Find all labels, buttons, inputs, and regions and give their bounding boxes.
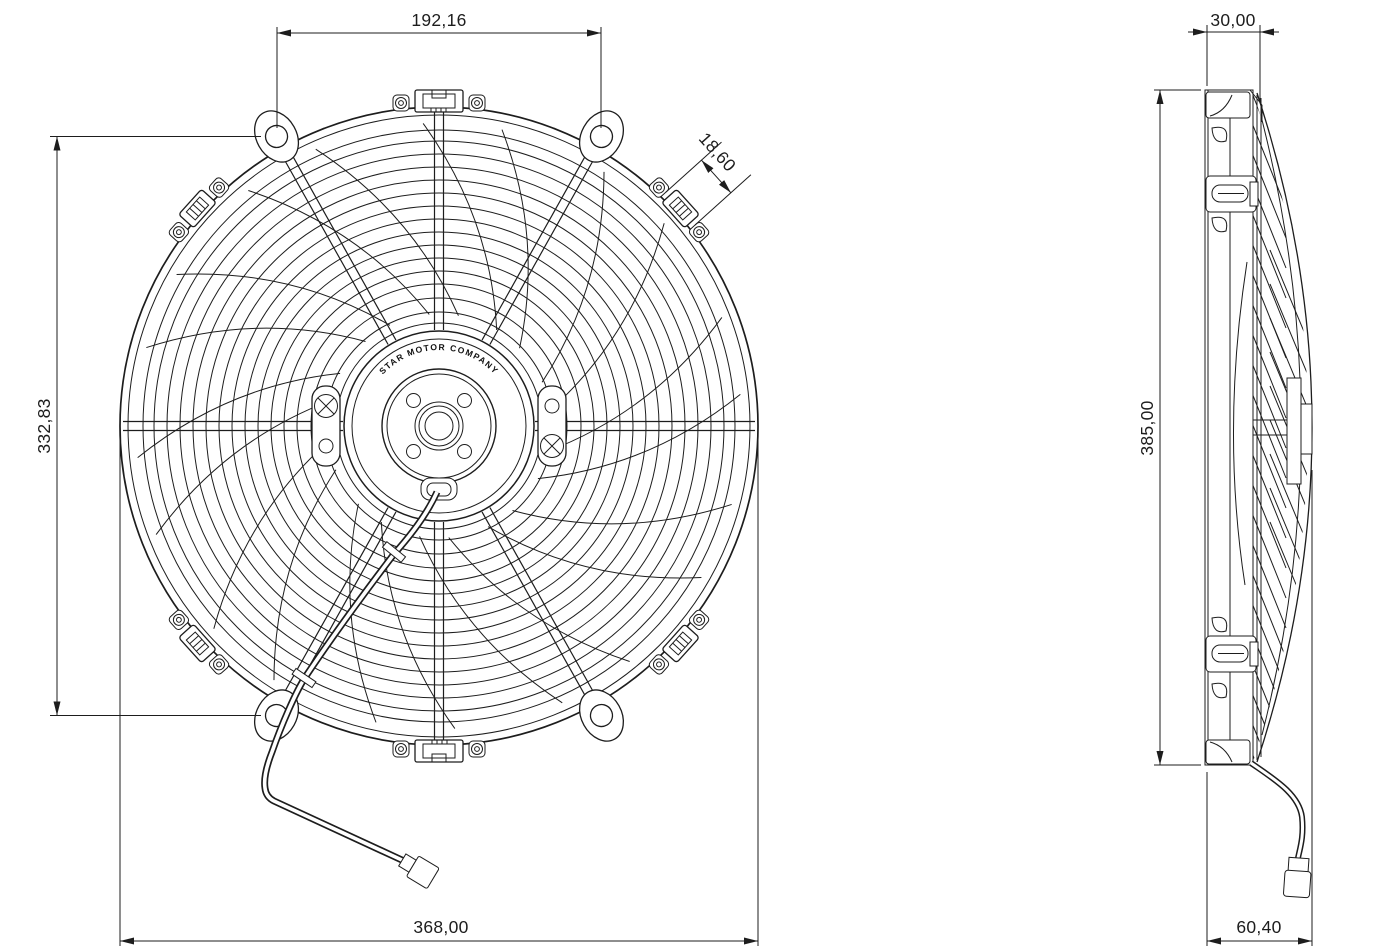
fan-technical-drawing: STAR MOTOR COMPANY 192,16 [0,0,1400,947]
dim-top-width: 192,16 [411,10,466,30]
side-wire-connector [1283,857,1312,898]
drawing-sheet: STAR MOTOR COMPANY 192,16 [0,0,1400,947]
dim-bottom-width: 368,00 [413,917,468,937]
dim-bottom-depth: 60,40 [1236,917,1281,937]
hub-bolt-hole [458,445,472,459]
side-power-wire [1251,763,1312,898]
hub-support-tab-left [312,386,340,466]
dim-clip-width: 18,60 [695,128,740,175]
front-view-fan: STAR MOTOR COMPANY 192,16 [34,10,758,946]
dim-top-depth: 30,00 [1210,10,1255,30]
hub-bolt-hole [407,394,421,408]
side-view-fan: 30,00 385,00 60,40 [1137,10,1312,946]
wire-connector [396,850,439,889]
hub-support-tab-right [538,386,566,466]
dim-height: 385,00 [1137,400,1157,455]
hub-wire-outlet [421,478,457,500]
dim-left-height: 332,83 [34,398,54,453]
motor-hub: STAR MOTOR COMPANY [344,331,534,521]
hub-bolt-hole [407,445,421,459]
hub-bolt-hole [458,394,472,408]
retainer-clip-top [1206,176,1258,212]
retainer-clip-bottom [1206,636,1258,672]
